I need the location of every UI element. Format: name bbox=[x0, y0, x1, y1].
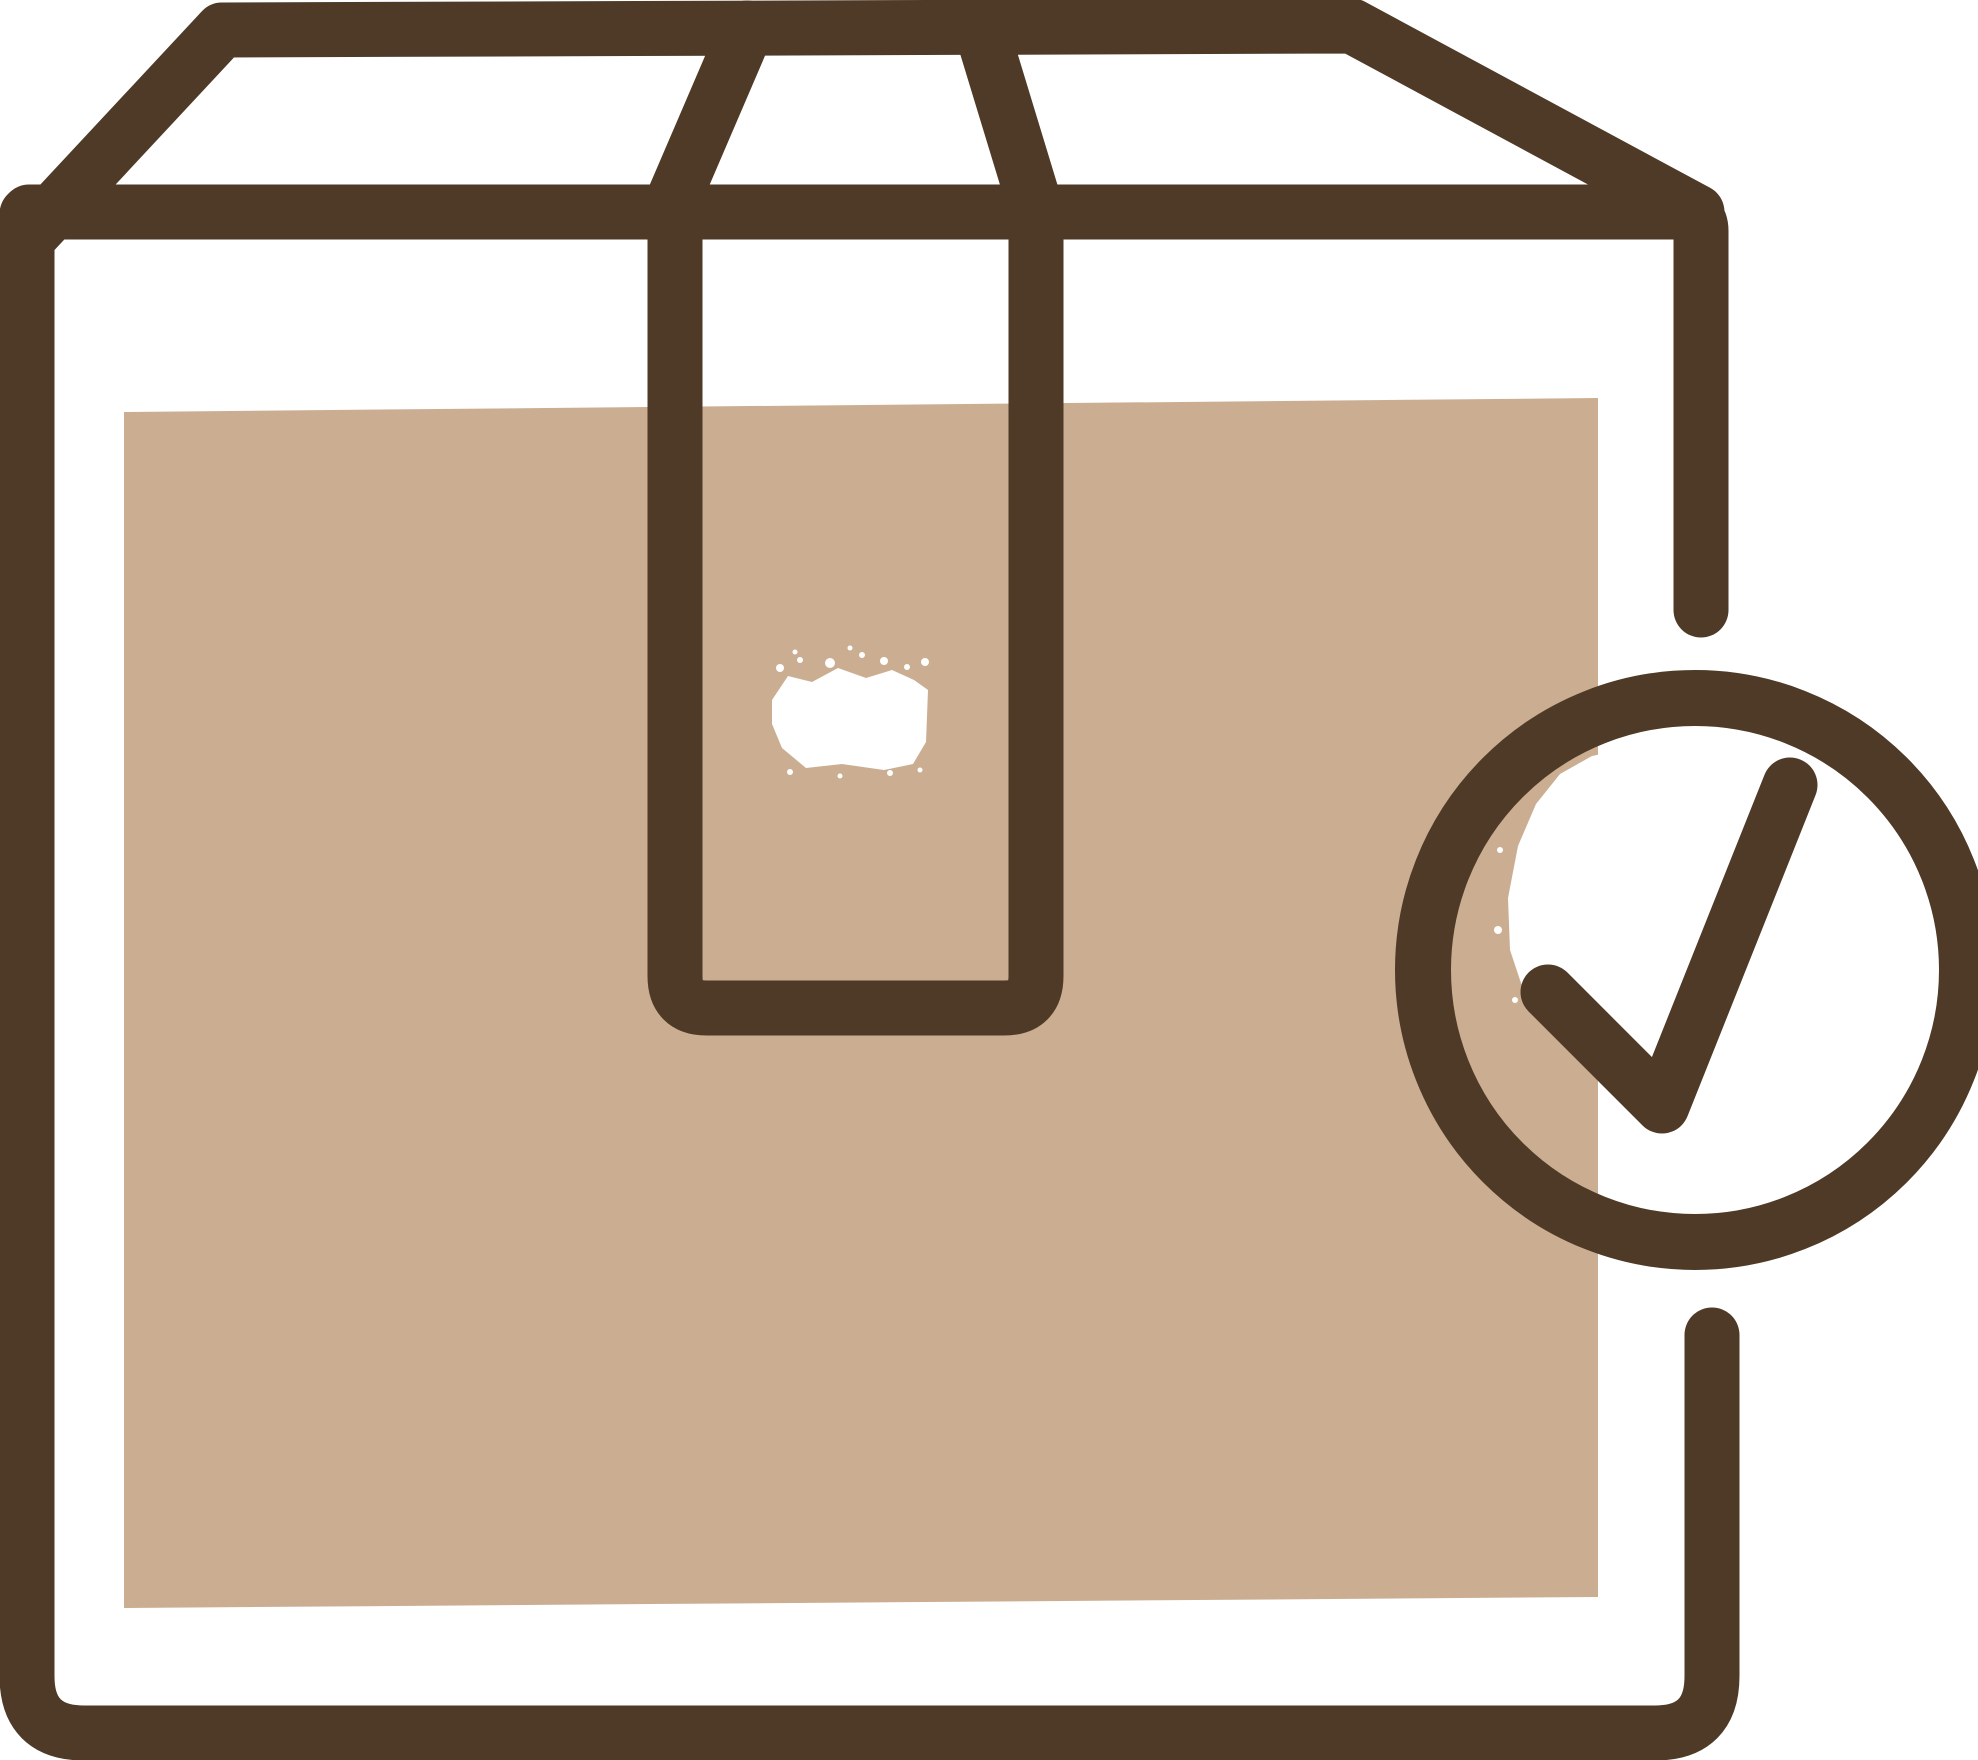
tape-highlight-shape bbox=[772, 668, 928, 770]
highlight-speckle bbox=[904, 664, 910, 670]
highlight-speckle bbox=[859, 652, 865, 658]
package-check-icon-svg bbox=[0, 0, 1978, 1760]
highlight-speckle bbox=[787, 769, 793, 775]
highlight-speckle bbox=[1494, 926, 1502, 934]
highlight-speckle bbox=[1497, 847, 1503, 853]
highlight-speckle bbox=[880, 657, 888, 665]
highlight-speckle bbox=[776, 664, 784, 672]
highlight-speckle bbox=[793, 650, 798, 655]
package-check-icon bbox=[0, 0, 1978, 1760]
highlight-speckle bbox=[887, 770, 893, 776]
highlight-speckle bbox=[918, 768, 923, 773]
highlight-speckle bbox=[1512, 997, 1518, 1003]
highlight-speckle bbox=[825, 658, 835, 668]
highlight-speckle bbox=[797, 657, 803, 663]
highlight-speckle bbox=[921, 658, 929, 666]
highlight-speckle bbox=[838, 774, 843, 779]
highlight-speckle bbox=[848, 646, 853, 651]
